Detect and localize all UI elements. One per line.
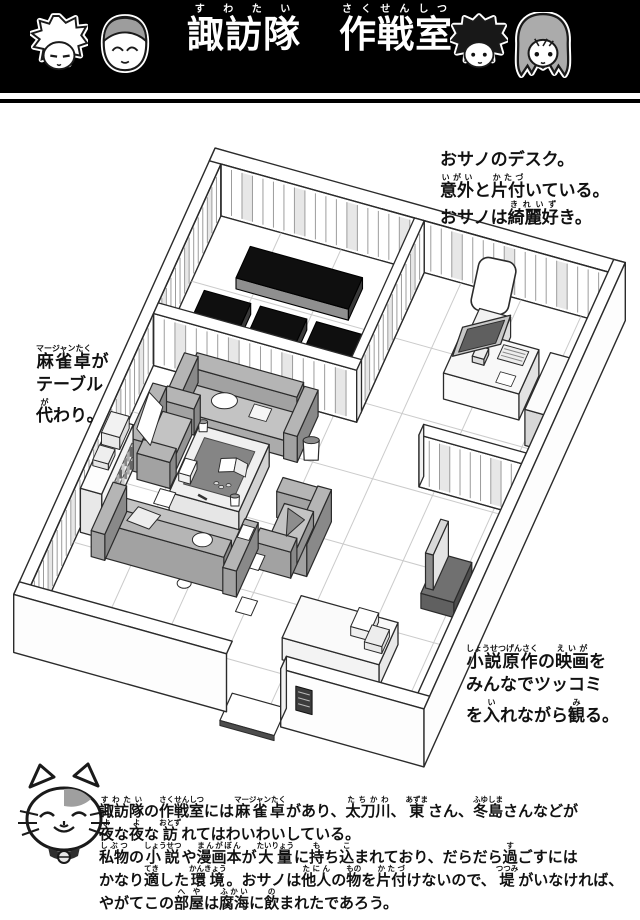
page-title: 諏訪隊すわたい 作戦室さくせんしつ (187, 4, 453, 58)
character-face-suwa-icon (96, 12, 154, 78)
title-banner: 諏訪隊すわたい 作戦室さくせんしつ (0, 0, 640, 93)
annotation-movie-line: みんなでツッコミ (466, 671, 619, 698)
annotation-mahjong-line: 代がわり。 (36, 398, 108, 425)
footer-line: 諏訪隊すわたいの作戦室さくせんしつには麻雀卓マージャンたくがあり、太刀川たちかわ… (99, 795, 623, 818)
header-divider (0, 99, 640, 103)
annotation-mahjong-line: テーブル (36, 371, 108, 398)
wall-switch-panel (296, 686, 312, 715)
annotation-movie-line: を入いれながら観みる。 (466, 698, 619, 725)
annotation-movie-line: 小説原作しょうせつげんさくの映画えいがを (466, 644, 619, 671)
footer-line: 私物しぶつの小説しょうせつや漫画本まんがぼんが大量たいりょうに持もち込こまれてお… (99, 841, 623, 864)
annotation-desk-line: おサノは綺麗好きれいずき。 (440, 200, 610, 227)
annotation-desk-line: おサノのデスク。 (440, 146, 610, 173)
annotation-desk: おサノのデスク。 意外いがいと片付かたづいている。 おサノは綺麗好きれいずき。 (440, 146, 610, 227)
character-face-osano-icon (512, 12, 574, 78)
character-face-tsutsumi-icon (450, 12, 508, 78)
annotation-mahjong-line: 麻雀卓マージャンたくが (36, 344, 108, 371)
annotation-movie: 小説原作しょうせつげんさくの映画えいがを みんなでツッコミ を入いれながら観みる… (466, 644, 619, 725)
annotation-mahjong-table: 麻雀卓マージャンたくが テーブル 代がわり。 (36, 344, 108, 425)
footer-description: 諏訪隊すわたいの作戦室さくせんしつには麻雀卓マージャンたくがあり、太刀川たちかわ… (99, 795, 623, 910)
character-face-sasamori-icon (30, 12, 88, 78)
annotation-desk-line: 意外いがいと片付かたづいている。 (440, 173, 610, 200)
trash-bin (303, 437, 319, 461)
